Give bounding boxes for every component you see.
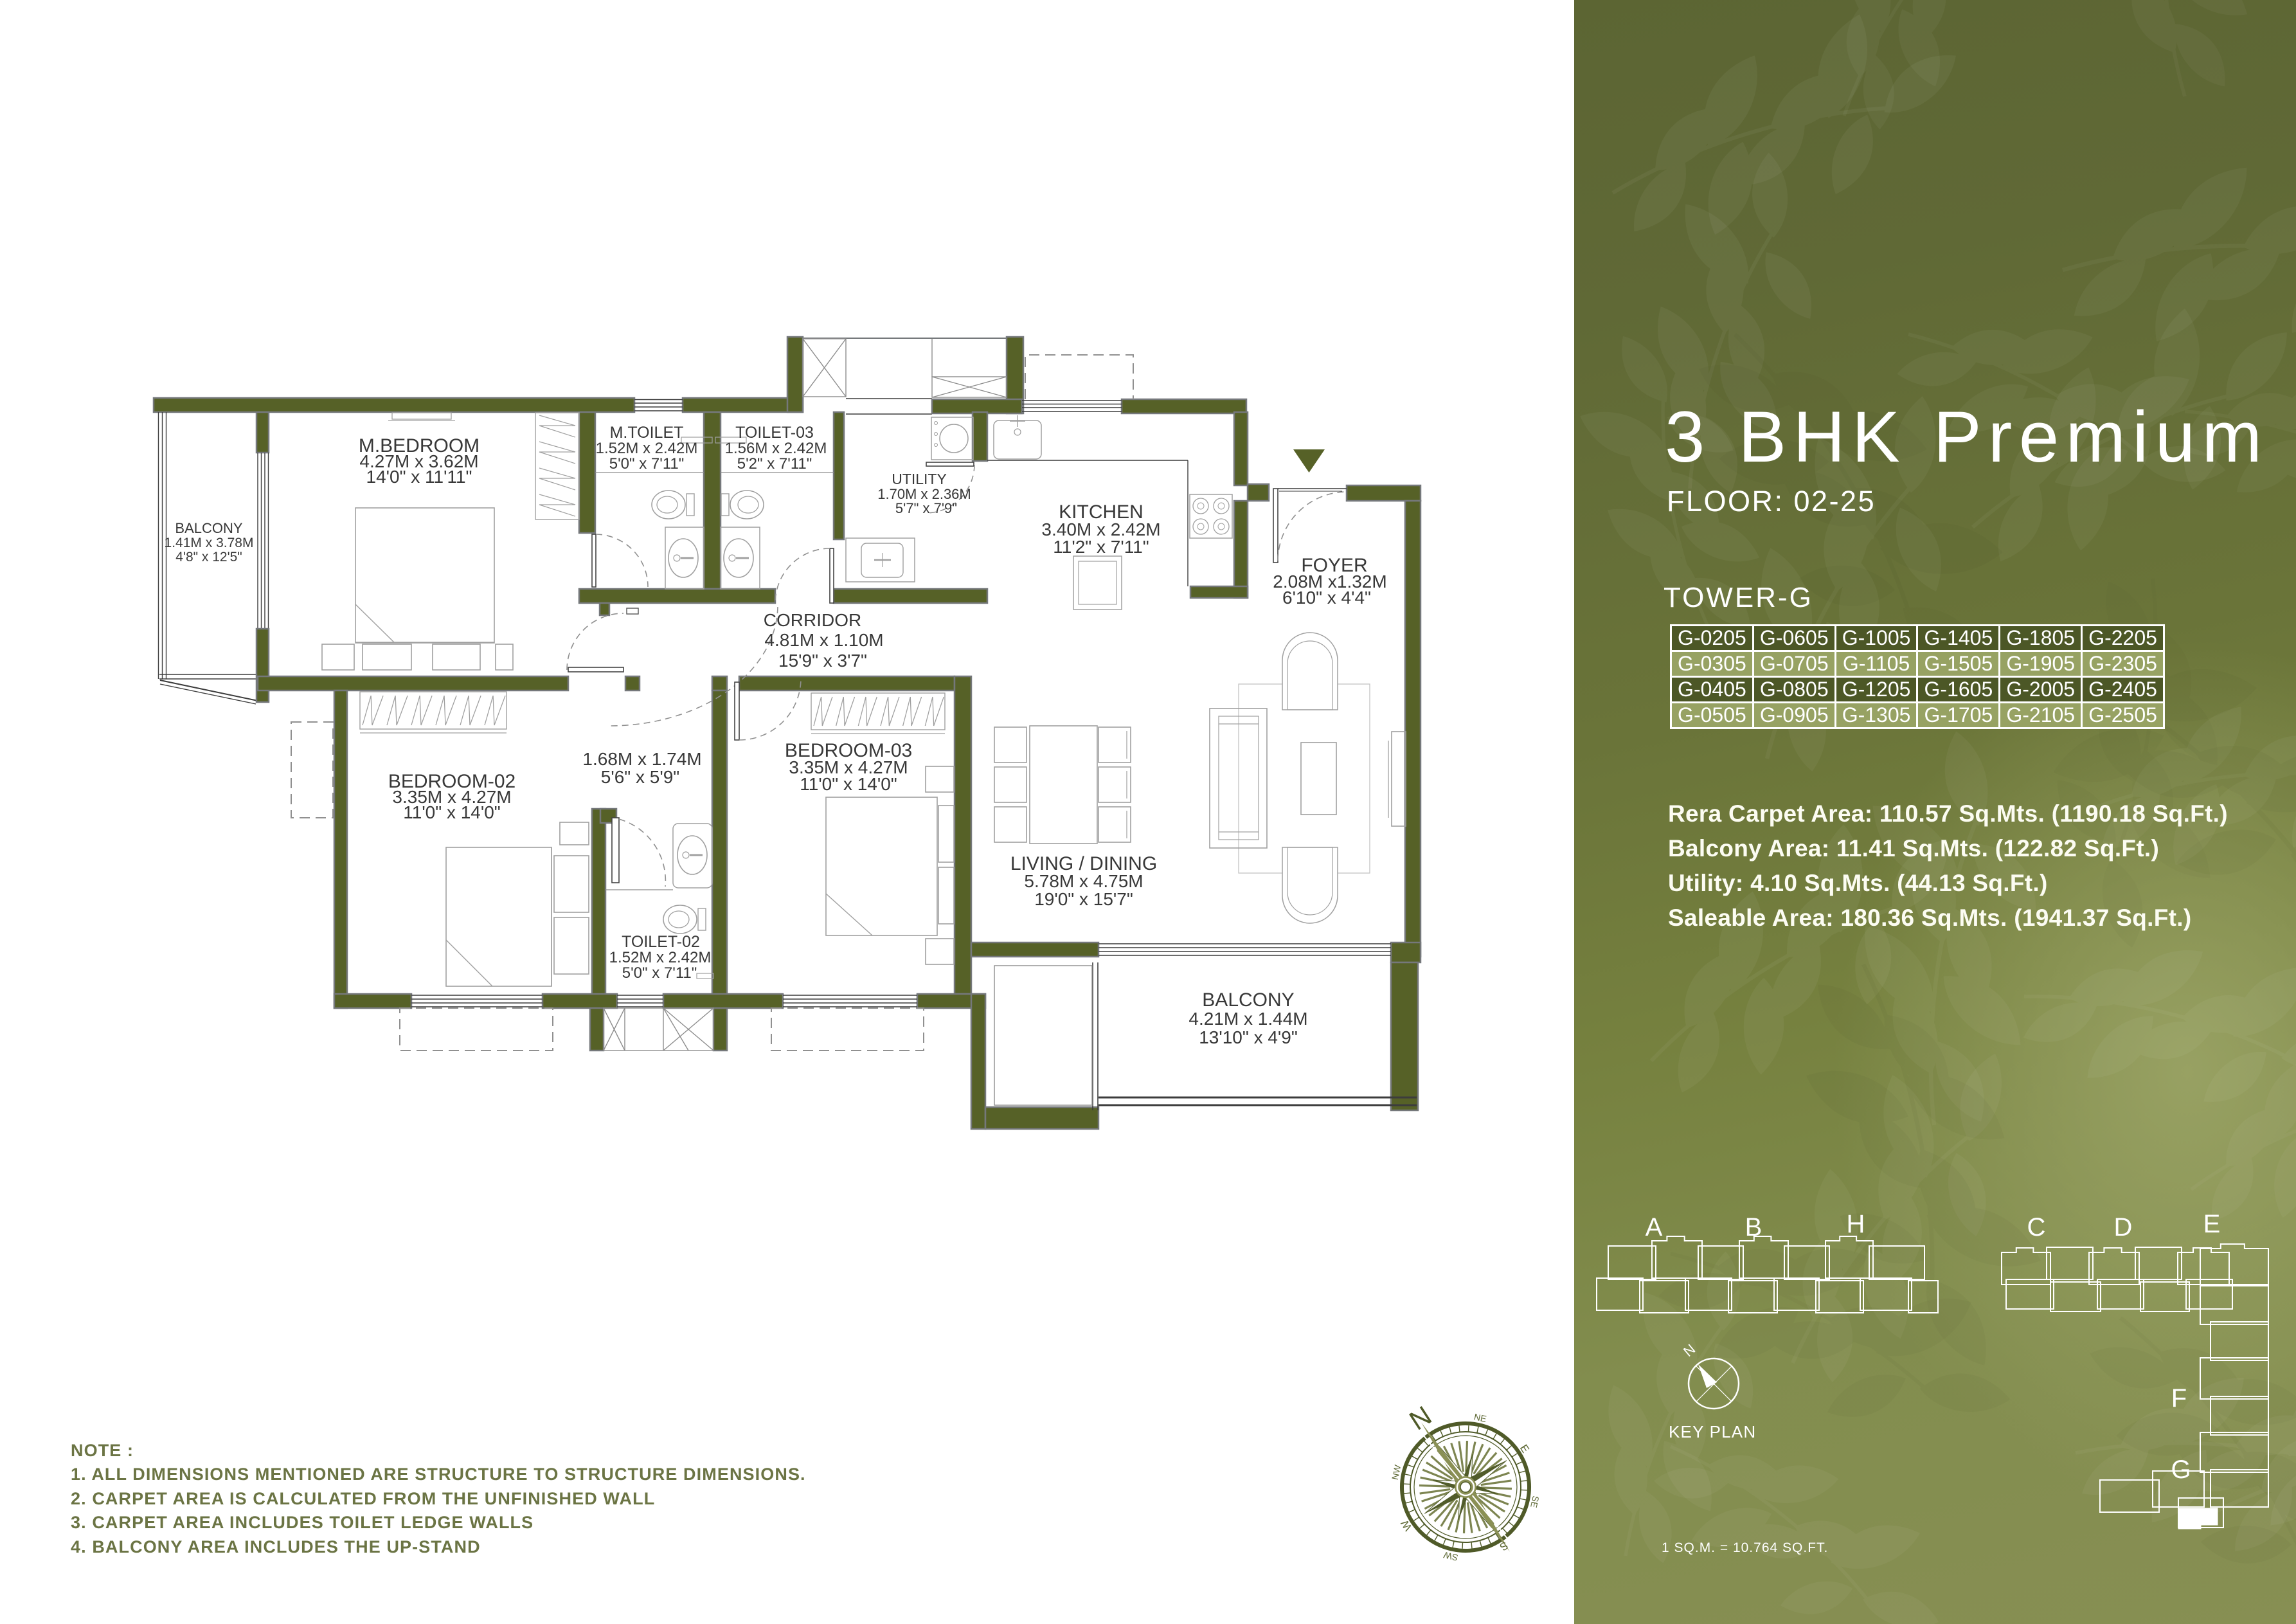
svg-text:N: N — [1680, 1341, 1698, 1360]
svg-text:C: C — [2027, 1213, 2046, 1241]
svg-text:D: D — [2114, 1213, 2133, 1241]
svg-text:F: F — [2171, 1384, 2187, 1412]
svg-text:SE: SE — [1529, 1495, 1541, 1509]
svg-text:NE: NE — [1473, 1411, 1487, 1424]
svg-text:KEY PLAN: KEY PLAN — [1669, 1422, 1756, 1441]
svg-text:E: E — [2203, 1210, 2221, 1238]
svg-text:B: B — [1745, 1213, 1762, 1241]
svg-text:G: G — [2171, 1456, 2191, 1484]
svg-text:A: A — [1646, 1213, 1663, 1241]
svg-text:N: N — [1404, 1400, 1437, 1436]
svg-text:H: H — [1847, 1210, 1865, 1238]
